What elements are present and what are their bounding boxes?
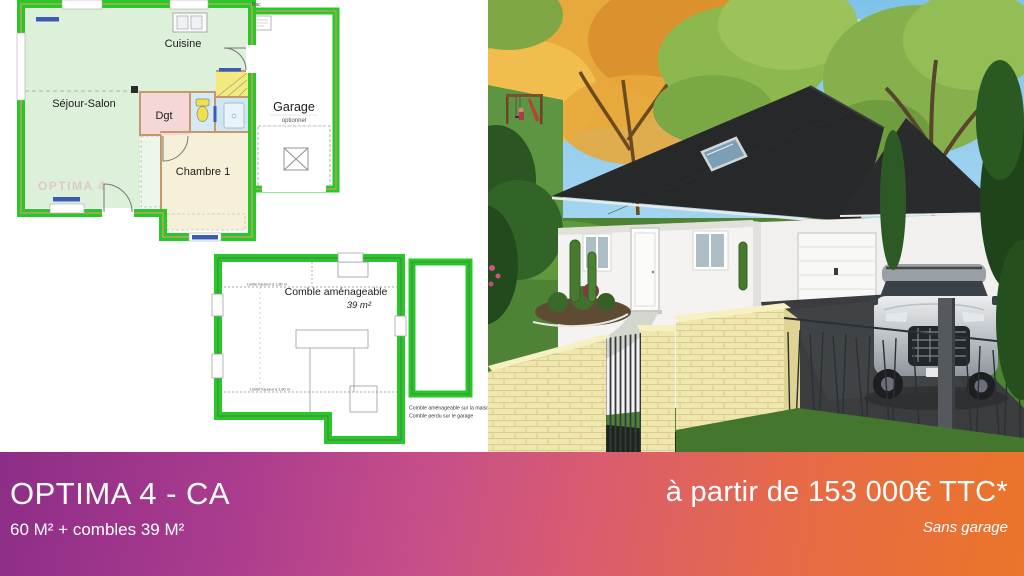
- house-render-photo: [488, 0, 1024, 452]
- surface-line: 60 M² + combles 39 M²: [10, 520, 230, 540]
- attic-limit-top: Limite hauteur à 1,80 m: [247, 283, 287, 287]
- kitchen-sink: [173, 13, 207, 32]
- attic-note-1: Comble aménageable sur la maison: [409, 406, 490, 412]
- label-cuisine: Cuisine: [165, 38, 202, 50]
- cypress-tree: [880, 130, 906, 270]
- plan-watermark: OPTIMA 4: [38, 179, 106, 193]
- toilet: [196, 99, 209, 122]
- attic-title: Comble aménageable: [285, 286, 388, 298]
- ground-floor-plan: Cuisine Séjour-Salon Dgt Chambre 1 Garag…: [17, 0, 336, 241]
- floor-plans-drawing: Cuisine Séjour-Salon Dgt Chambre 1 Garag…: [0, 0, 490, 452]
- promo-slide: Cuisine Séjour-Salon Dgt Chambre 1 Garag…: [0, 0, 1024, 576]
- attic-floor-plan: Comble aménageable 39 m² Limite hauteur …: [212, 253, 490, 440]
- shower-tray: [224, 103, 244, 128]
- label-garage-option: optionnel: [282, 118, 306, 124]
- garage-door: [798, 233, 876, 303]
- front-door: [628, 228, 662, 314]
- attic-note-2: Comble perdu sur le garage: [409, 414, 473, 420]
- model-name: OPTIMA 4 - CA: [10, 476, 230, 512]
- label-sejour: Séjour-Salon: [52, 98, 116, 110]
- house-render-drawing: [488, 0, 1024, 452]
- wall-pillar: [641, 330, 675, 452]
- label-chambre: Chambre 1: [176, 166, 230, 178]
- price-banner: OPTIMA 4 - CA 60 M² + combles 39 M² à pa…: [0, 452, 1024, 576]
- floor-plans-panel: Cuisine Séjour-Salon Dgt Chambre 1 Garag…: [0, 0, 490, 452]
- garage-door-opening: [262, 183, 326, 192]
- price-line: à partir de 153 000€ TTC*: [666, 476, 1008, 509]
- label-dgt: Dgt: [155, 110, 172, 122]
- price-note: Sans garage: [666, 519, 1008, 536]
- bathroom-floor: [216, 71, 248, 97]
- metal-gate: [606, 333, 641, 452]
- banner-right: à partir de 153 000€ TTC* Sans garage: [666, 476, 1008, 576]
- garage-attic-outline: [412, 262, 469, 394]
- label-pac: Pac: [252, 2, 261, 8]
- banner-left: OPTIMA 4 - CA 60 M² + combles 39 M²: [10, 476, 230, 576]
- attic-area: 39 m²: [347, 300, 372, 311]
- bedroom-floor: [160, 132, 248, 230]
- closet-area: [141, 136, 161, 207]
- window-left: [583, 234, 611, 271]
- attic-limit-bottom: Limite hauteur à 1,80 m: [250, 388, 290, 392]
- label-garage: Garage: [273, 100, 315, 114]
- window-right: [693, 231, 728, 270]
